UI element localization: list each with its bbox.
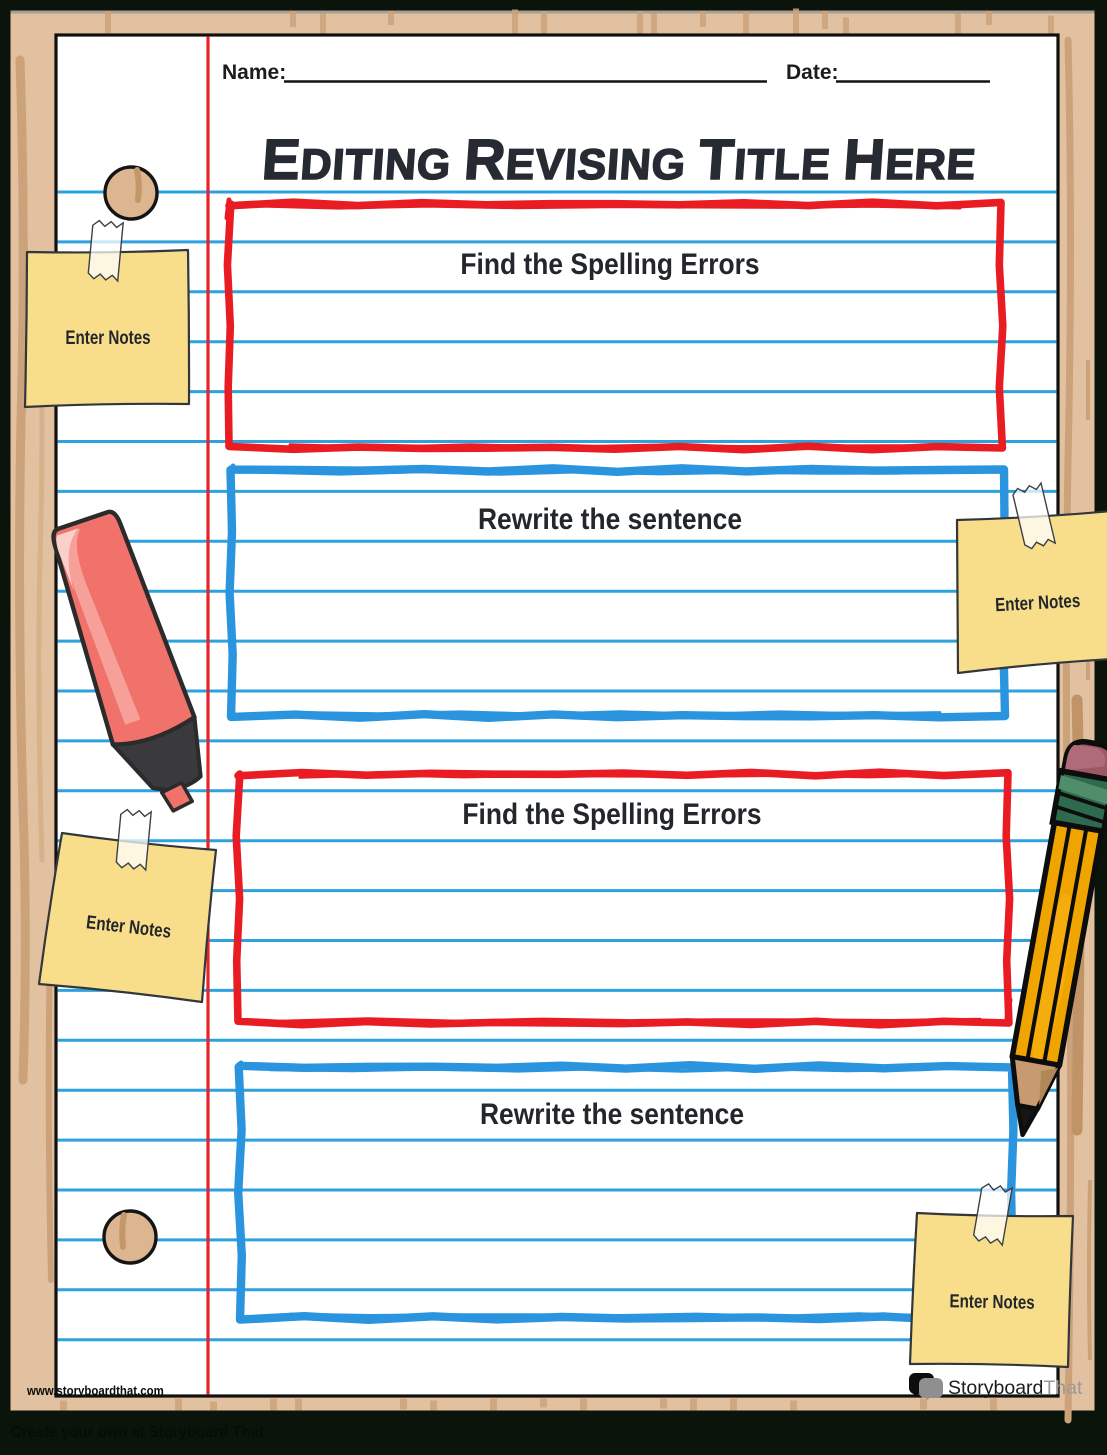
svg-text:Find the Spelling Errors: Find the Spelling Errors: [462, 796, 761, 830]
svg-text:www.storyboardthat.com: www.storyboardthat.com: [26, 1383, 164, 1398]
svg-text:Date:: Date:: [786, 61, 839, 84]
svg-text:Enter Notes: Enter Notes: [995, 589, 1081, 616]
svg-text:Enter Notes: Enter Notes: [949, 1290, 1035, 1314]
svg-text:Create your own at Storyboard: Create your own at Storyboard That: [11, 1424, 264, 1442]
svg-text:Find the Spelling Errors: Find the Spelling Errors: [460, 246, 759, 280]
svg-text:Rewrite the sentence: Rewrite the sentence: [478, 501, 742, 535]
svg-text:Name:: Name:: [222, 61, 286, 84]
svg-text:Enter Notes: Enter Notes: [65, 326, 150, 348]
svg-text:StoryboardThat: StoryboardThat: [948, 1377, 1083, 1399]
svg-text:Rewrite the sentence: Rewrite the sentence: [480, 1096, 744, 1130]
